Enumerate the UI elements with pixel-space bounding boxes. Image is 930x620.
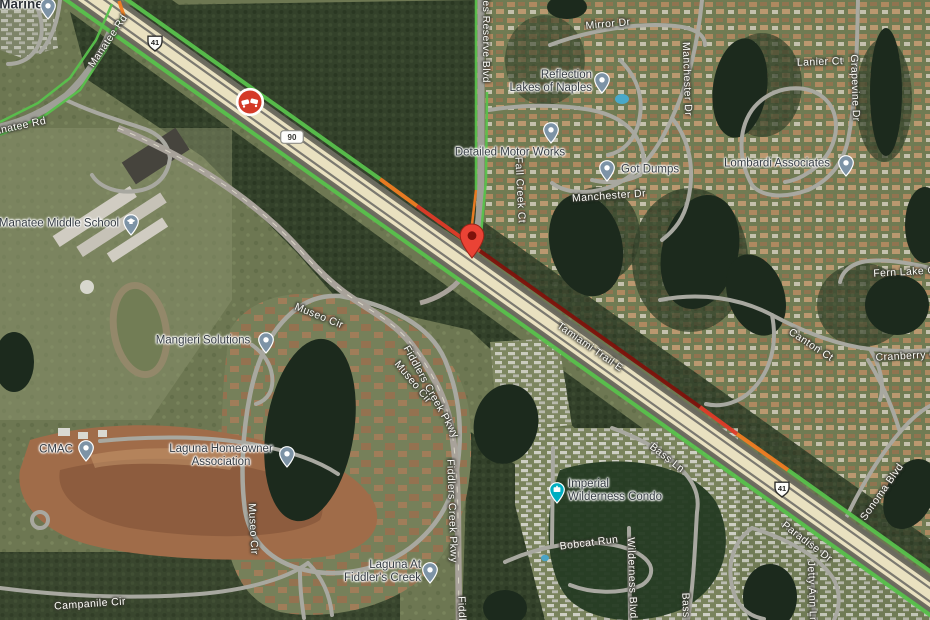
road-label-bass-ln: Bass Ln	[679, 592, 692, 620]
poi-pin-lombardi-associates-icon[interactable]	[838, 155, 854, 177]
svg-text:90: 90	[288, 133, 297, 142]
road-label-museo-cir: Museo Cir	[246, 503, 261, 555]
poi-pin-laguna-at-icon[interactable]	[422, 562, 438, 584]
svg-text:41: 41	[778, 483, 786, 492]
poi-pin-detailed-motor-works-icon[interactable]	[543, 122, 559, 144]
road-label-canton-ct: Canton Ct	[786, 326, 835, 364]
road-label-manatee-rd: Manatee Rd	[86, 12, 130, 69]
road-label-cranberry-ct: Cranberry Ct	[875, 348, 930, 363]
road-label-lanier-ct: Lanier Ct	[797, 55, 844, 69]
road-label-manatee-rd: Manatee Rd	[0, 115, 47, 139]
road-label-naples-reserve-blvd: Naples Reserve Blvd	[480, 0, 492, 83]
road-label-fern-lake-ct: Fern Lake Ct	[873, 264, 930, 279]
traffic-incident-crash-icon[interactable]	[235, 87, 265, 117]
map-viewport[interactable]: Manatee RdManatee RdNaples Reserve BlvdM…	[0, 0, 930, 620]
road-label-fiddlers-creek-pkwy: Fiddlers Creek Pkwy	[455, 596, 471, 620]
poi-label-cmac[interactable]: CMAC	[39, 444, 73, 457]
poi-pin-marine-icon[interactable]	[40, 0, 56, 20]
poi-label-lombardi-associates[interactable]: Lombardi Associates	[724, 158, 830, 171]
poi-label-detailed-motor-works[interactable]: Detailed Motor Works	[455, 147, 565, 160]
poi-pin-imperial-lodging-icon[interactable]	[549, 482, 565, 504]
road-label-sonoma-blvd: Sonoma Blvd	[858, 461, 906, 523]
route-shield-41: 41	[146, 35, 164, 52]
road-label-manchester-dr: Manchester Dr	[680, 42, 695, 116]
map-overlay: Manatee RdManatee RdNaples Reserve BlvdM…	[0, 0, 930, 620]
road-label-grapevine-dr: Grapevine Dr	[848, 54, 862, 122]
poi-pin-got-dumps-icon[interactable]	[599, 160, 615, 182]
poi-label-mangieri-solutions[interactable]: Mangieri Solutions	[156, 335, 251, 348]
svg-text:41: 41	[151, 37, 159, 46]
poi-pin-mangieri-solutions-icon[interactable]	[258, 332, 274, 354]
poi-pin-cmac-icon[interactable]	[78, 440, 94, 462]
poi-label-laguna-homeowner[interactable]: Laguna HomeownerAssociation	[169, 443, 273, 469]
road-label-bass-ln: Bass Ln	[647, 441, 686, 476]
poi-label-manatee-middle-school[interactable]: Manatee Middle School	[0, 218, 119, 231]
selected-location-pin[interactable]	[459, 223, 485, 259]
poi-label-laguna-at[interactable]: Laguna AtFiddler's Creek	[344, 559, 421, 585]
poi-pin-reflection-icon[interactable]	[594, 72, 610, 94]
road-label-fiddlers-creek-pkwy: Fiddlers Creek Pkwy	[401, 344, 462, 441]
road-label-mirror-dr: Mirror Dr	[585, 16, 631, 32]
poi-pin-laguna-homeowner-icon[interactable]	[279, 446, 295, 468]
poi-label-got-dumps[interactable]: Got Dumps	[621, 164, 679, 177]
poi-label-marine[interactable]: Marine	[0, 0, 43, 11]
road-label-tamiami-trail-e: Tamiami Trail E	[555, 320, 626, 374]
road-label-bobcat-run: Bobcat Run	[559, 533, 619, 552]
road-label-museo-cir: Museo Cir	[293, 301, 345, 331]
road-label-campanile-cir: Campanile Cir	[54, 596, 126, 613]
road-label-fiddlers-creek-pkwy: Fiddlers Creek Pkwy	[444, 459, 460, 563]
road-label-manchester-dr: Manchester Dr	[572, 187, 647, 204]
poi-label-imperial[interactable]: ImperialWilderness Condo	[568, 478, 662, 504]
poi-label-reflection[interactable]: ReflectionLakes of Naples	[510, 69, 592, 95]
road-label-paradise-dr: Paradise Dr	[779, 519, 834, 565]
route-shield-41: 41	[773, 481, 791, 498]
road-label-jetty-ann-ln: Jetty Ann Ln	[805, 561, 819, 620]
poi-pin-manatee-middle-school-school-icon[interactable]	[123, 214, 139, 236]
road-label-fall-creek-ct: Fall Creek Ct	[512, 156, 527, 223]
route-shield-90: 90	[280, 130, 304, 144]
road-label-wilderness-blvd: Wilderness Blvd	[625, 537, 640, 619]
